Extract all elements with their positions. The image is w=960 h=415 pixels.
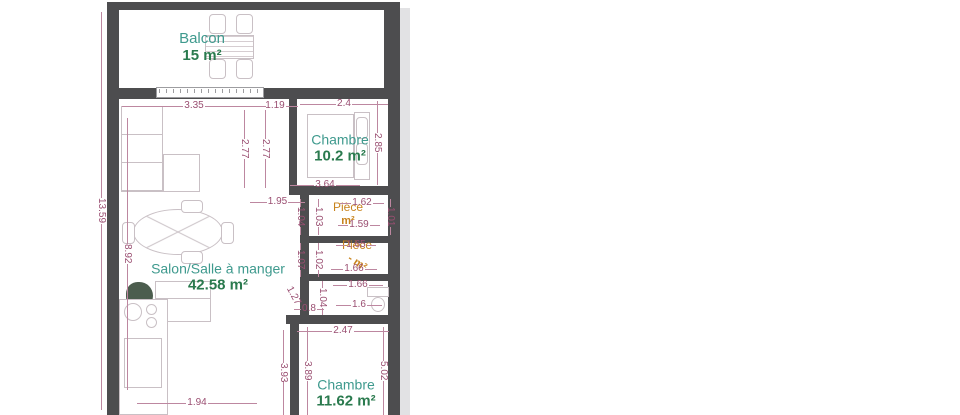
wall-shadow bbox=[400, 8, 410, 415]
room-name: Chambre bbox=[311, 131, 369, 147]
room-area: 15 m² bbox=[179, 47, 225, 64]
dimension-label: 0.8 bbox=[294, 303, 324, 315]
sliding-door-window bbox=[156, 87, 264, 98]
dimension-label: 2.4 bbox=[300, 98, 388, 110]
kitchen-cabinet bbox=[124, 338, 162, 388]
window-hatching bbox=[159, 89, 261, 93]
dining-chair bbox=[122, 222, 135, 244]
wall-chambre2-top bbox=[286, 315, 400, 324]
table-cross-line bbox=[134, 210, 222, 254]
dining-chair bbox=[221, 222, 234, 244]
room-name: Balcon bbox=[179, 30, 225, 47]
wall-left bbox=[107, 88, 119, 415]
wall-chambre2-left bbox=[290, 316, 299, 415]
dining-chair bbox=[181, 200, 203, 213]
room-label-piece1: Pièce m² bbox=[333, 201, 363, 227]
room-name: Pièce bbox=[342, 239, 372, 253]
dimension-label: 1.02 bbox=[312, 243, 324, 277]
dimension-label: 2.85 bbox=[371, 101, 383, 185]
sofa-chaise bbox=[163, 154, 200, 192]
dimension-label: 3.93 bbox=[277, 330, 289, 415]
dimension-label: 13.59 bbox=[95, 12, 107, 410]
dimension-label: 1.03 bbox=[312, 199, 324, 235]
dimension-label: 1.04 bbox=[316, 281, 328, 315]
room-area: 10.2 m² bbox=[311, 147, 369, 164]
room-label-chambre1: Chambre 10.2 m² bbox=[311, 131, 369, 164]
kitchen-burner bbox=[146, 304, 157, 315]
room-label-salon: Salon/Salle à manger 42.58 m² bbox=[151, 260, 285, 293]
balcony-chair bbox=[236, 14, 253, 34]
sofa bbox=[121, 106, 163, 192]
room-area: - m² bbox=[345, 252, 369, 274]
wall-below-chambre bbox=[289, 186, 400, 195]
toilet-bowl bbox=[371, 297, 385, 312]
floor-plan: Balcon 15 m² Chambre 10.2 m² Salon/Salle… bbox=[0, 0, 420, 415]
floor-plan-page: Balcon 15 m² Chambre 10.2 m² Salon/Salle… bbox=[0, 0, 960, 415]
room-name: Salon/Salle à manger bbox=[151, 260, 285, 276]
room-area: 11.62 m² bbox=[316, 392, 375, 409]
dimension-label: 1.95 bbox=[250, 196, 305, 208]
wall-piece2-piece3-divider bbox=[300, 274, 400, 281]
wall-balcony-top bbox=[107, 2, 388, 10]
wall-salon-chambre-divider bbox=[289, 99, 297, 191]
wall-balcony-left bbox=[107, 2, 119, 96]
balcony-chair bbox=[236, 59, 253, 79]
dimension-label: 3.89 bbox=[301, 327, 313, 415]
room-name: Pièce bbox=[333, 201, 363, 215]
room-label-balcon: Balcon 15 m² bbox=[179, 30, 225, 65]
dimension-label: 2.77 bbox=[259, 110, 271, 188]
room-label-chambre2: Chambre 11.62 m² bbox=[316, 376, 375, 409]
kitchen-burner bbox=[146, 317, 157, 328]
wall-pieces-left bbox=[300, 195, 309, 322]
room-label-piece2: Pièce - m² bbox=[342, 239, 372, 271]
dining-table bbox=[133, 209, 223, 255]
room-area: 42.58 m² bbox=[151, 276, 285, 293]
dimension-label: 2.47 bbox=[297, 325, 389, 337]
room-name: Chambre bbox=[316, 376, 375, 392]
kitchen-sink bbox=[124, 303, 142, 321]
room-area: m² bbox=[333, 215, 363, 228]
toilet-cistern bbox=[367, 287, 389, 297]
wall-right bbox=[388, 88, 400, 415]
dimension-label: 2.77 bbox=[238, 110, 250, 188]
wall-balcony-right bbox=[384, 2, 400, 96]
